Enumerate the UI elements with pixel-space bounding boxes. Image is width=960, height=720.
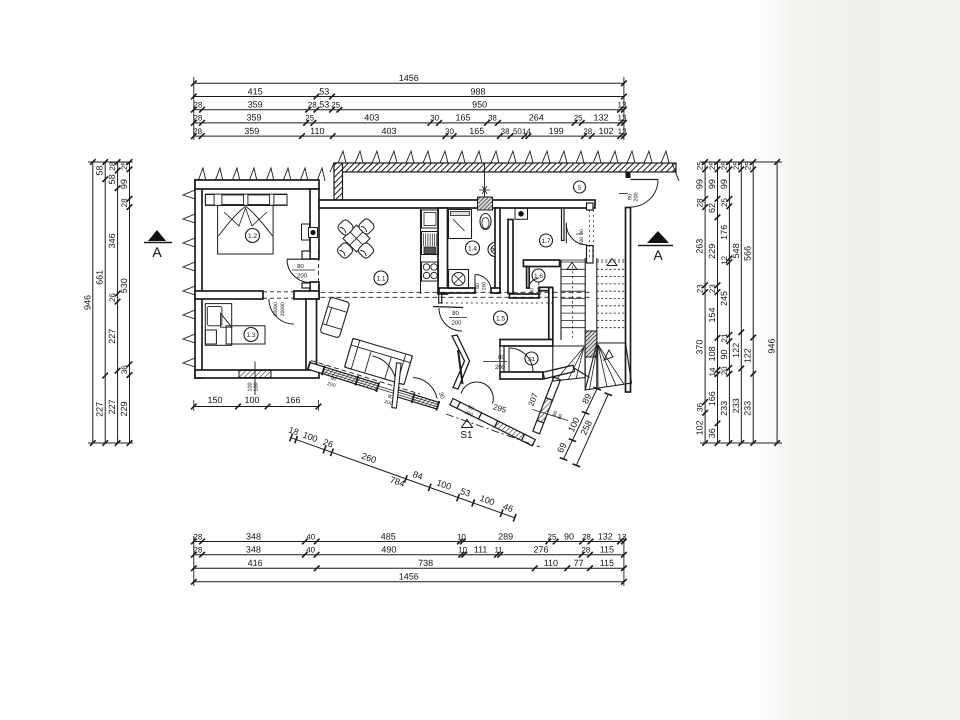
svg-text:99: 99 (119, 179, 129, 189)
svg-text:108: 108 (707, 346, 717, 361)
svg-text:233: 233 (743, 401, 753, 416)
svg-text:1456: 1456 (399, 572, 419, 582)
svg-text:200: 200 (537, 287, 543, 296)
svg-text:A: A (653, 247, 663, 263)
svg-text:403: 403 (364, 113, 379, 123)
svg-text:28: 28 (193, 546, 202, 555)
svg-text:11: 11 (494, 546, 503, 555)
svg-text:946: 946 (82, 295, 92, 310)
svg-text:10: 10 (457, 532, 466, 541)
svg-text:25: 25 (720, 198, 729, 207)
svg-text:227: 227 (95, 402, 105, 417)
svg-text:115: 115 (600, 558, 614, 568)
svg-text:58: 58 (107, 174, 117, 184)
svg-text:28: 28 (193, 127, 202, 136)
svg-text:A: A (152, 244, 162, 260)
svg-text:14: 14 (708, 367, 717, 376)
svg-text:99: 99 (707, 179, 717, 189)
svg-text:1456: 1456 (399, 73, 419, 83)
svg-text:946: 946 (767, 338, 777, 353)
svg-text:738: 738 (418, 558, 433, 568)
svg-text:28: 28 (193, 101, 202, 110)
svg-text:530: 530 (119, 278, 129, 293)
svg-text:28: 28 (582, 532, 591, 541)
svg-text:38: 38 (488, 114, 497, 123)
svg-text:80: 80 (452, 310, 459, 317)
svg-text:28: 28 (193, 114, 202, 123)
svg-text:415: 415 (248, 86, 263, 96)
svg-text:200: 200 (495, 364, 506, 371)
svg-text:80: 80 (475, 283, 481, 289)
svg-text:200: 200 (273, 308, 279, 317)
svg-text:77: 77 (574, 558, 584, 568)
svg-text:28: 28 (583, 127, 592, 136)
svg-text:150: 150 (207, 395, 222, 405)
svg-text:38: 38 (501, 127, 510, 136)
svg-text:359: 359 (246, 113, 261, 123)
svg-text:566: 566 (743, 246, 753, 261)
svg-text:200: 200 (451, 320, 462, 327)
svg-text:227: 227 (107, 329, 117, 344)
svg-text:30: 30 (445, 127, 454, 136)
svg-text:99: 99 (695, 179, 705, 189)
svg-text:122: 122 (731, 343, 741, 358)
svg-text:359: 359 (248, 100, 263, 110)
svg-text:13: 13 (618, 114, 627, 123)
svg-text:200: 200 (634, 192, 640, 201)
svg-text:20: 20 (720, 366, 729, 375)
svg-text:988: 988 (470, 86, 485, 96)
svg-text:233: 233 (731, 398, 741, 413)
svg-text:80: 80 (273, 302, 279, 308)
svg-text:1.3: 1.3 (246, 332, 255, 339)
svg-text:10: 10 (458, 546, 467, 555)
svg-text:348: 348 (246, 545, 261, 555)
svg-text:21: 21 (720, 333, 729, 342)
svg-text:176: 176 (719, 225, 729, 240)
svg-text:227: 227 (107, 399, 117, 414)
svg-text:165: 165 (455, 113, 470, 123)
svg-text:23: 23 (708, 284, 717, 293)
svg-text:28: 28 (120, 198, 129, 207)
svg-text:25: 25 (574, 114, 583, 123)
svg-text:200: 200 (579, 237, 585, 246)
svg-text:13: 13 (618, 101, 627, 110)
svg-text:28: 28 (696, 198, 705, 207)
svg-text:200: 200 (280, 308, 286, 317)
svg-text:348: 348 (246, 531, 261, 541)
svg-text:53: 53 (319, 86, 329, 96)
svg-text:229: 229 (707, 244, 717, 259)
svg-text:122: 122 (743, 348, 753, 363)
svg-text:36: 36 (707, 428, 717, 438)
svg-text:276: 276 (533, 545, 548, 555)
svg-text:200: 200 (297, 273, 308, 280)
svg-text:115: 115 (600, 545, 614, 555)
svg-text:36: 36 (120, 365, 129, 374)
svg-text:661: 661 (95, 270, 105, 285)
svg-text:28: 28 (581, 546, 590, 555)
svg-text:200: 200 (482, 282, 488, 291)
svg-text:1.5: 1.5 (496, 316, 505, 323)
svg-text:346: 346 (107, 233, 117, 248)
svg-text:100: 100 (244, 395, 259, 405)
svg-text:S1: S1 (528, 356, 536, 363)
svg-text:370: 370 (695, 340, 705, 355)
svg-text:28: 28 (308, 101, 317, 110)
svg-text:13: 13 (618, 127, 627, 136)
svg-text:233: 233 (719, 401, 729, 416)
svg-text:90: 90 (564, 531, 574, 541)
svg-text:154: 154 (707, 307, 717, 322)
svg-text:23: 23 (696, 284, 705, 293)
svg-text:102: 102 (598, 126, 613, 136)
svg-text:25: 25 (548, 532, 557, 541)
svg-text:416: 416 (248, 558, 263, 568)
svg-text:950: 950 (472, 100, 487, 110)
svg-text:490: 490 (381, 545, 396, 555)
svg-text:165: 165 (469, 126, 484, 136)
svg-text:1.2: 1.2 (248, 233, 257, 240)
svg-text:245: 245 (719, 291, 729, 306)
svg-text:166: 166 (707, 391, 717, 406)
svg-text:403: 403 (381, 126, 396, 136)
svg-text:264: 264 (529, 113, 544, 123)
svg-text:132: 132 (598, 531, 613, 541)
svg-text:100: 100 (254, 382, 260, 391)
svg-text:36: 36 (696, 402, 705, 411)
svg-text:548: 548 (731, 243, 741, 258)
svg-text:166: 166 (285, 395, 300, 405)
svg-text:102: 102 (695, 420, 705, 435)
svg-text:1.4: 1.4 (468, 246, 477, 253)
svg-text:110: 110 (310, 126, 324, 136)
svg-text:229: 229 (119, 401, 129, 416)
svg-text:26: 26 (108, 293, 117, 302)
svg-text:62: 62 (707, 203, 717, 213)
svg-text:80: 80 (280, 302, 286, 308)
svg-text:80: 80 (530, 288, 536, 294)
svg-text:40: 40 (306, 546, 315, 555)
svg-text:1.1: 1.1 (376, 276, 385, 283)
svg-text:110: 110 (544, 558, 558, 568)
svg-text:199: 199 (549, 126, 564, 136)
svg-text:28: 28 (108, 161, 117, 170)
svg-text:28: 28 (193, 532, 202, 541)
svg-text:25: 25 (305, 114, 314, 123)
svg-text:359: 359 (244, 126, 259, 136)
svg-text:58: 58 (95, 166, 105, 176)
svg-text:1.7: 1.7 (541, 238, 550, 245)
svg-text:30: 30 (430, 114, 439, 123)
svg-text:12: 12 (720, 255, 729, 264)
svg-text:80: 80 (297, 263, 304, 270)
svg-text:485: 485 (381, 531, 396, 541)
svg-text:53: 53 (319, 100, 329, 110)
svg-text:S1: S1 (460, 430, 473, 441)
svg-text:40: 40 (306, 532, 315, 541)
svg-text:13: 13 (618, 532, 627, 541)
svg-text:289: 289 (498, 531, 513, 541)
svg-text:111: 111 (474, 545, 488, 555)
svg-text:14: 14 (522, 127, 531, 136)
svg-text:263: 263 (695, 239, 705, 254)
svg-text:132: 132 (593, 113, 608, 123)
svg-text:90: 90 (719, 349, 729, 359)
svg-text:25: 25 (331, 101, 340, 110)
svg-text:99: 99 (719, 179, 729, 189)
svg-text:80: 80 (498, 354, 505, 361)
